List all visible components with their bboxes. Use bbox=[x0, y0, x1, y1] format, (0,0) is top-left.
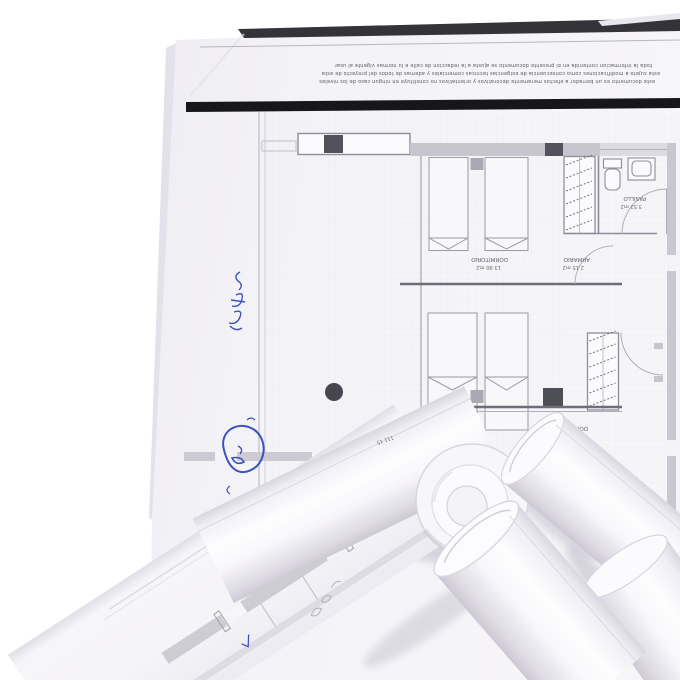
wardrobe-symbol-2 bbox=[588, 331, 619, 410]
disclaimer-text: este documento es un borrador a efectos … bbox=[319, 62, 660, 84]
nightstand-2 bbox=[471, 390, 484, 403]
scene-canvas: este documento es un borrador a efectos … bbox=[0, 0, 680, 680]
shaft-dark-block bbox=[543, 388, 563, 408]
right-wall-gap-2 bbox=[667, 440, 676, 456]
svg-text:DORMITORIO: DORMITORIO bbox=[471, 256, 508, 262]
wall-dark-block-1 bbox=[324, 135, 343, 153]
bed-symbol-1 bbox=[429, 158, 468, 251]
wall-dark-block-2 bbox=[545, 143, 563, 156]
bed-symbol-2 bbox=[485, 158, 528, 251]
right-wall-gap-1 bbox=[667, 255, 676, 271]
toilet-symbol bbox=[604, 159, 622, 190]
sink-symbol bbox=[628, 158, 655, 180]
door-jamb-1 bbox=[654, 343, 663, 349]
wall-pillar-box bbox=[298, 134, 410, 155]
nightstand-1 bbox=[471, 158, 484, 170]
exterior-wall-band bbox=[410, 143, 600, 156]
marker-dot bbox=[325, 383, 343, 401]
svg-text:PASILLO: PASILLO bbox=[623, 195, 646, 201]
svg-text:13.90 m2: 13.90 m2 bbox=[476, 264, 501, 270]
wardrobe-symbol-1 bbox=[564, 155, 595, 234]
disclaimer-line-2: esta sujeto a modificaciones como consec… bbox=[322, 70, 660, 76]
svg-text:3.52 m2: 3.52 m2 bbox=[620, 203, 642, 209]
svg-text:ARMARIO: ARMARIO bbox=[563, 256, 590, 262]
right-wall-band bbox=[667, 143, 676, 560]
bed-symbol-4 bbox=[485, 313, 528, 430]
svg-text:2.15 m2: 2.15 m2 bbox=[562, 264, 584, 270]
disclaimer-line-3: toda la informacion contenida en el pres… bbox=[334, 62, 652, 68]
door-jamb-2 bbox=[654, 376, 663, 382]
blueprint-photo-scene: este documento es un borrador a efectos … bbox=[0, 0, 680, 680]
disclaimer-line-1: este documento es un borrador a efectos … bbox=[319, 78, 655, 84]
